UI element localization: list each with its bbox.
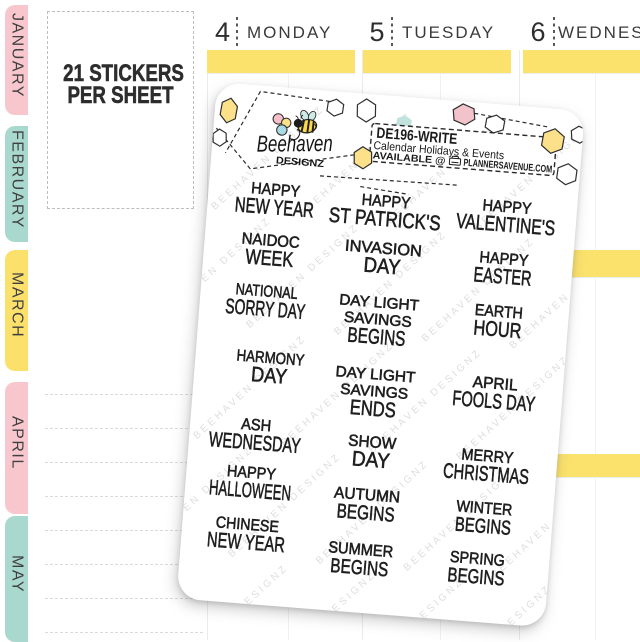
- svg-text:HOUR: HOUR: [473, 316, 523, 343]
- svg-text:SORRY DAY: SORRY DAY: [225, 295, 307, 324]
- svg-text:DESIGNZ: DESIGNZ: [276, 155, 325, 170]
- svg-text:BEGINS: BEGINS: [336, 500, 396, 526]
- svg-text:CHRISTMAS: CHRISTMAS: [442, 459, 530, 489]
- svg-text:BEGINS: BEGINS: [454, 514, 512, 540]
- svg-text:DAY: DAY: [351, 447, 391, 473]
- svg-text:WEEK: WEEK: [244, 245, 294, 272]
- svg-text:VALENTINE'S: VALENTINE'S: [455, 210, 555, 241]
- svg-text:NEW YEAR: NEW YEAR: [234, 193, 315, 222]
- svg-text:NEW YEAR: NEW YEAR: [206, 528, 286, 557]
- svg-text:DAY: DAY: [250, 363, 288, 389]
- svg-text:DAY: DAY: [363, 254, 402, 280]
- svg-text:BEGINS: BEGINS: [330, 555, 390, 581]
- svg-text:EASTER: EASTER: [473, 263, 533, 290]
- svg-text:BEGINS: BEGINS: [447, 564, 506, 590]
- svg-text:HALLOWEEN: HALLOWEEN: [208, 476, 292, 505]
- svg-text:Beehaven: Beehaven: [257, 130, 333, 157]
- svg-text:ENDS: ENDS: [349, 396, 397, 423]
- svg-text:BEGINS: BEGINS: [347, 324, 407, 351]
